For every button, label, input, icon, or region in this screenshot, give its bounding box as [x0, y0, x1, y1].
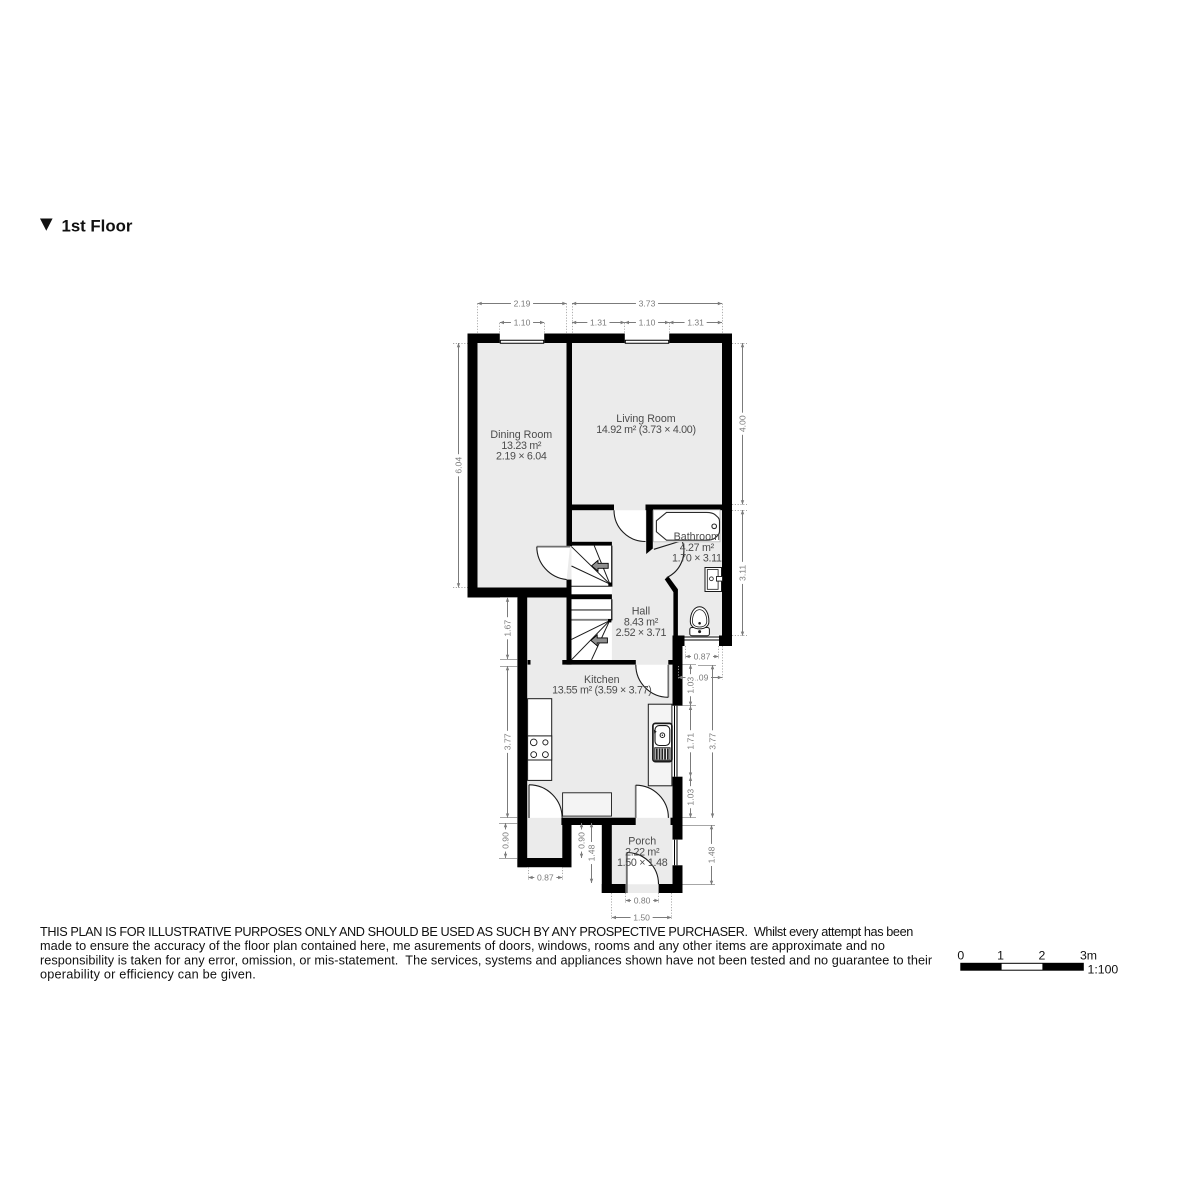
svg-text:1:100: 1:100: [1088, 963, 1119, 977]
svg-text:4.00: 4.00: [738, 415, 748, 432]
svg-text:0.87: 0.87: [694, 652, 711, 662]
svg-text:2.52 × 3.71: 2.52 × 3.71: [616, 627, 667, 639]
svg-text:2.19: 2.19: [514, 299, 531, 309]
svg-text:1.10: 1.10: [514, 318, 531, 328]
svg-text:1.03: 1.03: [686, 677, 696, 694]
svg-text:2: 2: [1038, 949, 1045, 963]
svg-text:1.48: 1.48: [707, 846, 717, 863]
svg-text:0.90: 0.90: [501, 832, 511, 849]
svg-text:0.87: 0.87: [537, 873, 554, 883]
svg-text:3.77: 3.77: [708, 733, 718, 750]
svg-text:2.19 × 6.04: 2.19 × 6.04: [496, 451, 547, 463]
svg-text:13.55 m² (3.59 × 3.77): 13.55 m² (3.59 × 3.77): [552, 685, 651, 697]
svg-text:1.10: 1.10: [639, 318, 656, 328]
svg-text:0.80: 0.80: [634, 896, 651, 906]
svg-text:3m: 3m: [1080, 949, 1097, 963]
svg-text:1.70 × 3.11: 1.70 × 3.11: [672, 553, 722, 565]
svg-text:1.48: 1.48: [587, 844, 597, 861]
svg-text:1: 1: [997, 949, 1004, 963]
svg-text:3.77: 3.77: [503, 733, 513, 750]
svg-text:1.71: 1.71: [686, 733, 696, 750]
svg-text:1.31: 1.31: [687, 318, 704, 328]
svg-text:responsibility is taken for an: responsibility is taken for any error, o…: [40, 953, 933, 967]
svg-text:1.50: 1.50: [633, 913, 650, 923]
svg-text:0.90: 0.90: [577, 832, 587, 849]
svg-text:14.92 m² (3.73 × 4.00): 14.92 m² (3.73 × 4.00): [596, 424, 695, 436]
svg-text:THIS PLAN IS FOR ILLUSTRATIVE: THIS PLAN IS FOR ILLUSTRATIVE PURPOSES O…: [40, 925, 913, 939]
svg-text:6.04: 6.04: [454, 457, 464, 474]
svg-text:3.11: 3.11: [738, 565, 748, 581]
svg-text:1.50 × 1.48: 1.50 × 1.48: [617, 857, 668, 869]
svg-text:1.67: 1.67: [503, 620, 513, 637]
svg-text:1.31: 1.31: [590, 318, 607, 328]
svg-text:1st Floor: 1st Floor: [62, 217, 133, 236]
svg-text:3.73: 3.73: [639, 299, 656, 309]
svg-text:made to ensure the accuracy of: made to ensure the accuracy of the floor…: [40, 939, 885, 953]
svg-text:1.03: 1.03: [686, 789, 696, 806]
svg-text:operability or efficiency can: operability or efficiency can be given.: [40, 968, 256, 982]
svg-text:0: 0: [957, 949, 964, 963]
